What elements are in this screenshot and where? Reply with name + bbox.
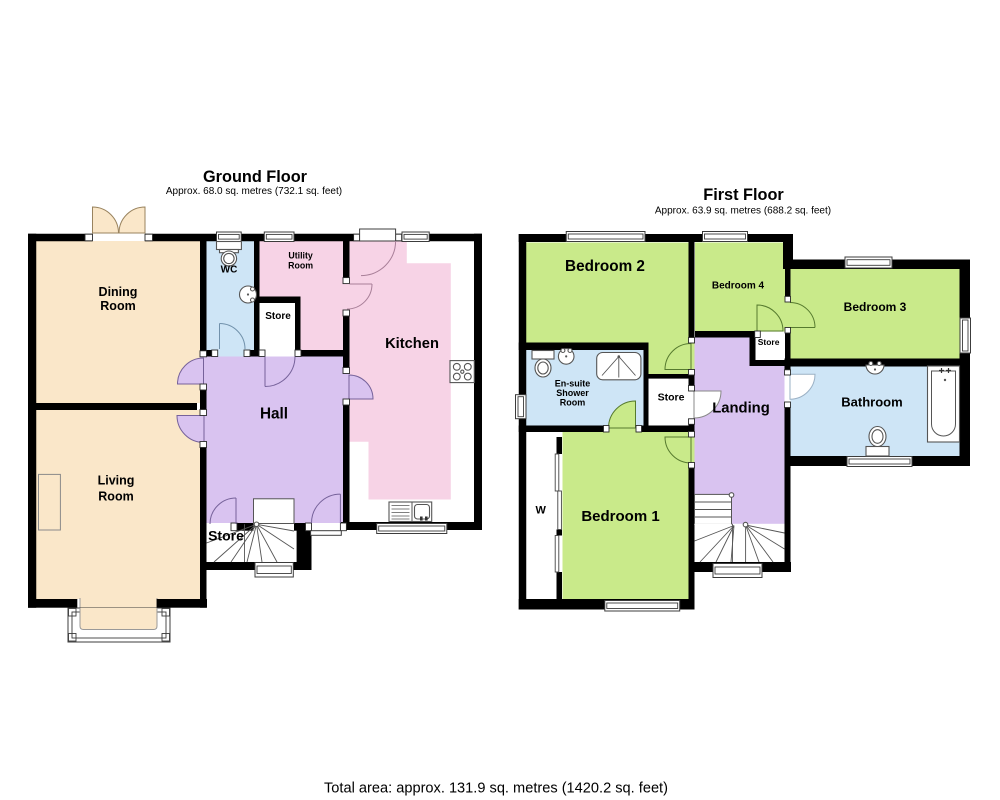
svg-text:First Floor: First Floor (703, 186, 784, 204)
svg-text:Bedroom 3: Bedroom 3 (844, 300, 907, 314)
svg-text:Bedroom 1: Bedroom 1 (581, 508, 659, 525)
svg-text:Approx. 63.9 sq. metres (688.2: Approx. 63.9 sq. metres (688.2 sq. feet) (655, 206, 831, 217)
svg-text:En-suite: En-suite (555, 379, 591, 389)
svg-text:Approx. 68.0 sq. metres (732.1: Approx. 68.0 sq. metres (732.1 sq. feet) (166, 186, 342, 197)
svg-text:Room: Room (560, 398, 586, 408)
svg-text:W: W (536, 505, 547, 517)
svg-text:Living: Living (98, 474, 135, 488)
svg-text:Room: Room (100, 299, 135, 313)
svg-text:Ground Floor: Ground Floor (203, 168, 308, 186)
svg-text:Kitchen: Kitchen (385, 336, 439, 352)
svg-text:Store: Store (265, 311, 291, 322)
svg-text:WC: WC (221, 265, 238, 276)
svg-text:Utility: Utility (288, 251, 313, 261)
svg-text:Store: Store (208, 528, 244, 544)
svg-text:Bedroom 2: Bedroom 2 (565, 258, 645, 275)
svg-text:Bedroom 4: Bedroom 4 (712, 281, 765, 292)
svg-text:Total area: approx. 131.9 sq.: Total area: approx. 131.9 sq. metres (14… (324, 781, 668, 797)
svg-text:Store: Store (758, 337, 780, 347)
svg-text:Bathroom: Bathroom (841, 395, 902, 410)
svg-text:Landing: Landing (712, 401, 770, 417)
svg-text:Store: Store (658, 392, 685, 404)
svg-text:Room: Room (98, 490, 133, 504)
svg-text:Room: Room (288, 261, 313, 271)
svg-text:Dining: Dining (99, 285, 138, 299)
svg-text:Hall: Hall (260, 406, 288, 423)
svg-text:Shower: Shower (556, 388, 589, 398)
